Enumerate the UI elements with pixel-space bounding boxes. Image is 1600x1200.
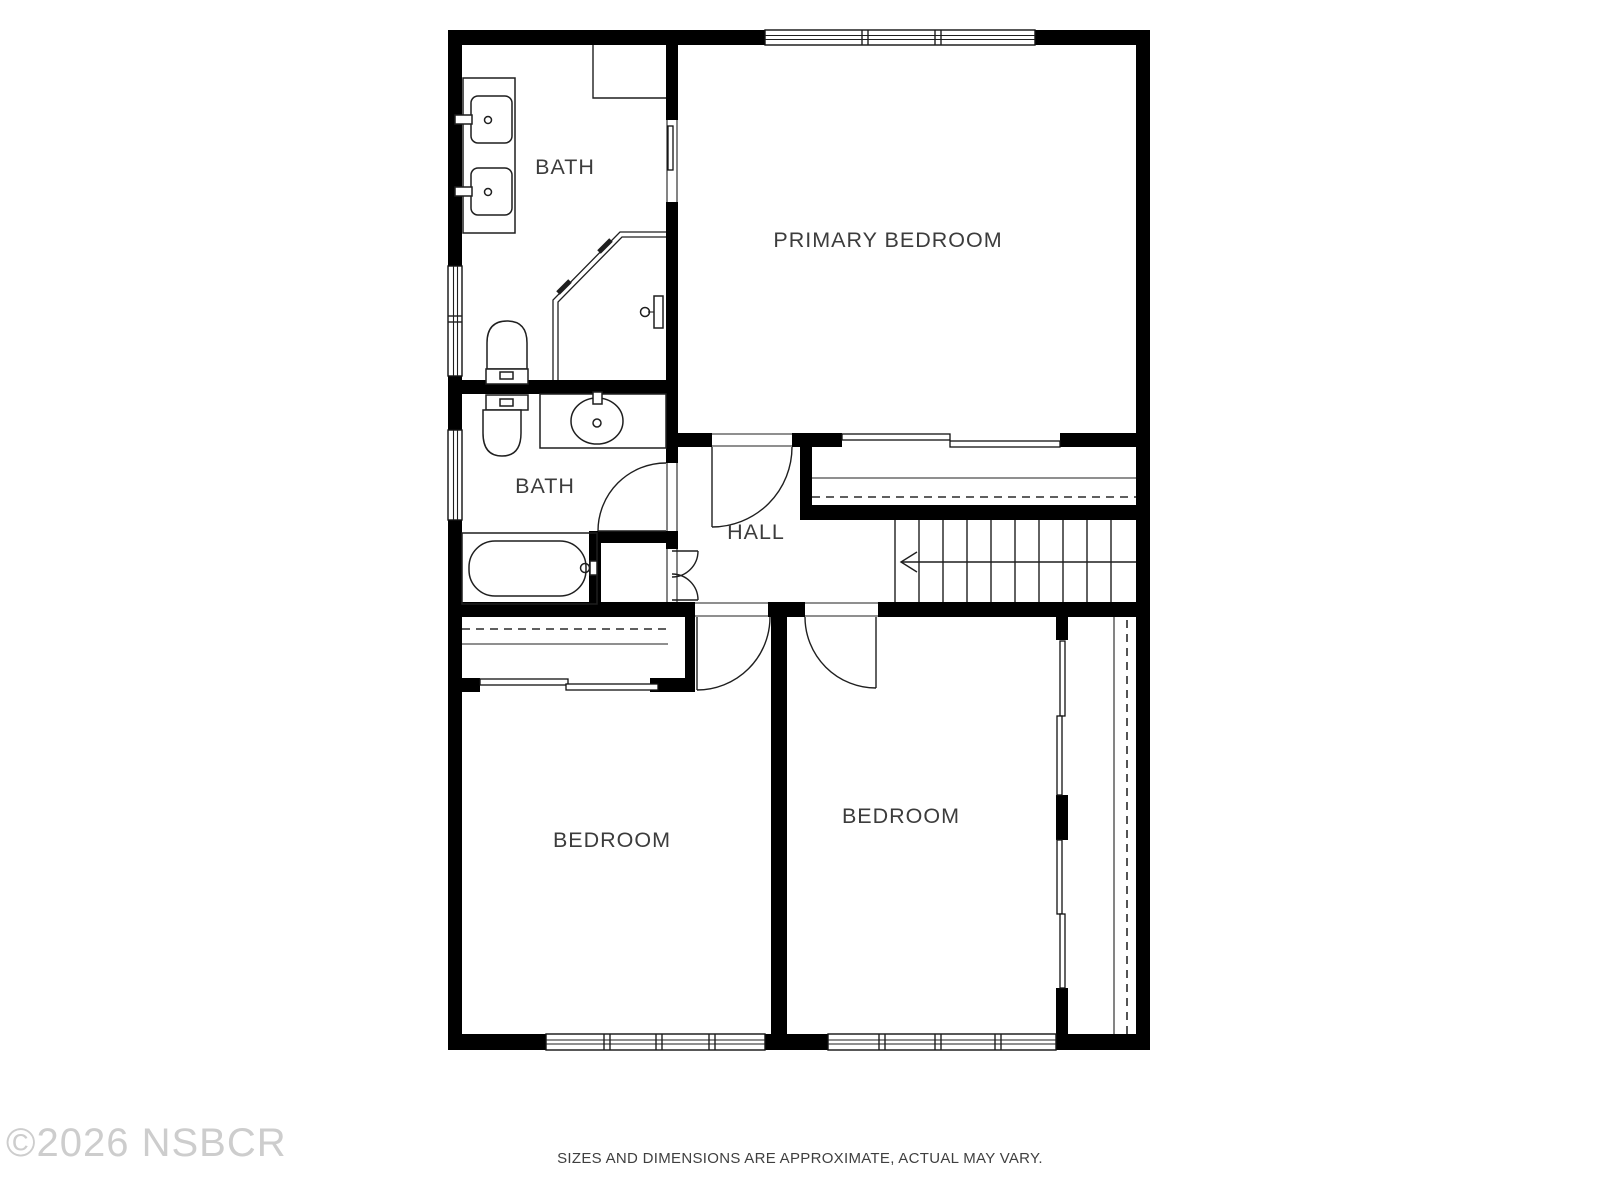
right-bedroom-closet (1114, 617, 1127, 1034)
fixtures (455, 45, 666, 604)
primary-closet (812, 478, 1136, 497)
sliding-doors-left-closet (480, 679, 658, 690)
door-bedroom-right (805, 603, 878, 688)
double-vanity (455, 78, 515, 233)
toilet-lower-bath (483, 395, 528, 456)
window-bedroom-left (546, 1034, 765, 1050)
shower (553, 232, 666, 380)
window-bedroom-right (828, 1034, 1056, 1050)
floor-plan-drawing: BATH PRIMARY BEDROOM BATH HALL BEDROOM B… (0, 0, 1600, 1200)
left-bedroom-closet (462, 629, 668, 644)
door-primary-bedroom (712, 434, 792, 527)
pocket-door-primary-bath (667, 120, 677, 202)
room-label-hall: HALL (727, 520, 785, 544)
room-label-bedroom-left: BEDROOM (553, 828, 671, 852)
toilet-upper-bath (486, 321, 528, 384)
window-primary-top (765, 30, 1035, 45)
room-labels: BATH PRIMARY BEDROOM BATH HALL BEDROOM B… (515, 155, 1003, 852)
walls (448, 30, 1150, 1050)
room-label-primary-bedroom: PRIMARY BEDROOM (773, 228, 1002, 252)
room-label-bath-hall: BATH (515, 474, 575, 498)
shower-head (641, 296, 664, 328)
bathtub (462, 533, 597, 604)
room-label-bedroom-right: BEDROOM (842, 804, 960, 828)
door-hall-bath (598, 463, 677, 531)
sink-lower-bath (540, 392, 666, 448)
stairs-direction-arrow (901, 552, 1136, 572)
bath-niche (593, 45, 666, 98)
door-bedroom-left (695, 603, 770, 690)
double-doors-linen-closet (667, 549, 698, 602)
disclaimer-text: SIZES AND DIMENSIONS ARE APPROXIMATE, AC… (557, 1150, 1043, 1167)
room-label-bath-primary: BATH (535, 155, 595, 179)
sliding-doors-primary-closet (842, 434, 1060, 447)
window-bath-left-upper (448, 266, 462, 376)
floor-plan-page: BATH PRIMARY BEDROOM BATH HALL BEDROOM B… (0, 0, 1600, 1200)
stairs (895, 520, 1136, 602)
copyright-watermark: ©2026 NSBCR (6, 1121, 287, 1165)
window-bath-left-lower (448, 430, 462, 520)
